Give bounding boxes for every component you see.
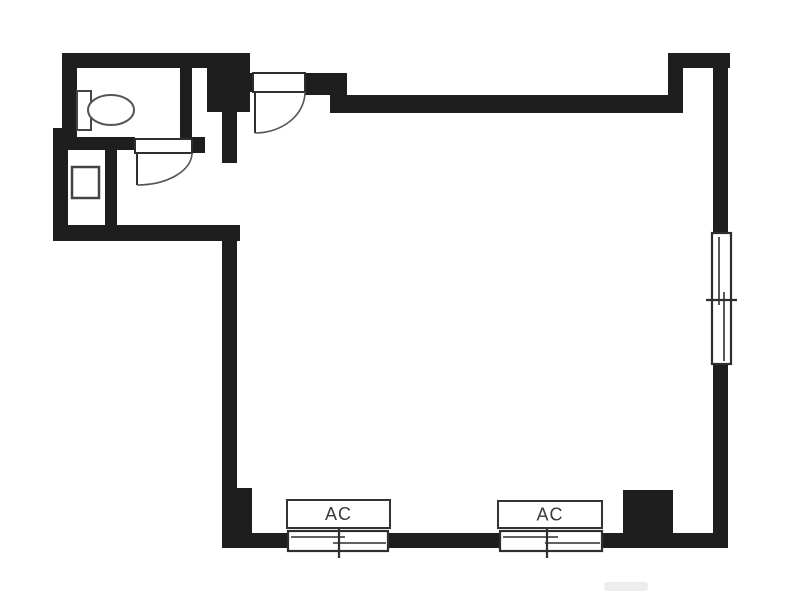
washer-pan	[72, 167, 99, 198]
wall-column-bottomright	[623, 490, 673, 533]
toilet-bowl	[88, 95, 134, 125]
ac-unit-label: AC	[536, 505, 563, 525]
wall-toilet-bottom	[62, 137, 135, 150]
wall-vestibule-left	[222, 112, 237, 163]
wall-top-main	[330, 95, 682, 113]
entrance-door-swing-arc	[255, 92, 305, 133]
wall-pillar-bottomleft	[222, 488, 252, 533]
toilet-door-swing-arc	[137, 153, 192, 185]
floorplan-svg: ACAC	[0, 0, 787, 598]
wall-left-upper	[62, 53, 77, 138]
wall-right-upper	[713, 68, 728, 235]
wall-toilet-bottom-stub	[192, 137, 205, 153]
entrance-door-frame	[253, 73, 305, 92]
floorplan-canvas: ACAC	[0, 0, 787, 598]
window-bottom-right-frame	[500, 531, 602, 551]
wall-right-lower	[713, 363, 728, 548]
ac-unit-label: AC	[325, 504, 352, 524]
window-right-sliding-frame	[712, 233, 731, 364]
wall-entry-jamb-left	[240, 73, 253, 92]
watermark-smudge	[604, 582, 648, 591]
wall-toilet-right	[180, 65, 192, 140]
toilet-door-frame	[135, 139, 192, 153]
wall-topright-return	[668, 68, 683, 113]
wall-hall-bottom	[53, 225, 240, 241]
wall-entry-jamb-right	[305, 73, 347, 95]
wall-topright-band	[668, 53, 730, 68]
wall-closet-partition	[105, 148, 117, 225]
wall-left-lower	[53, 138, 68, 240]
